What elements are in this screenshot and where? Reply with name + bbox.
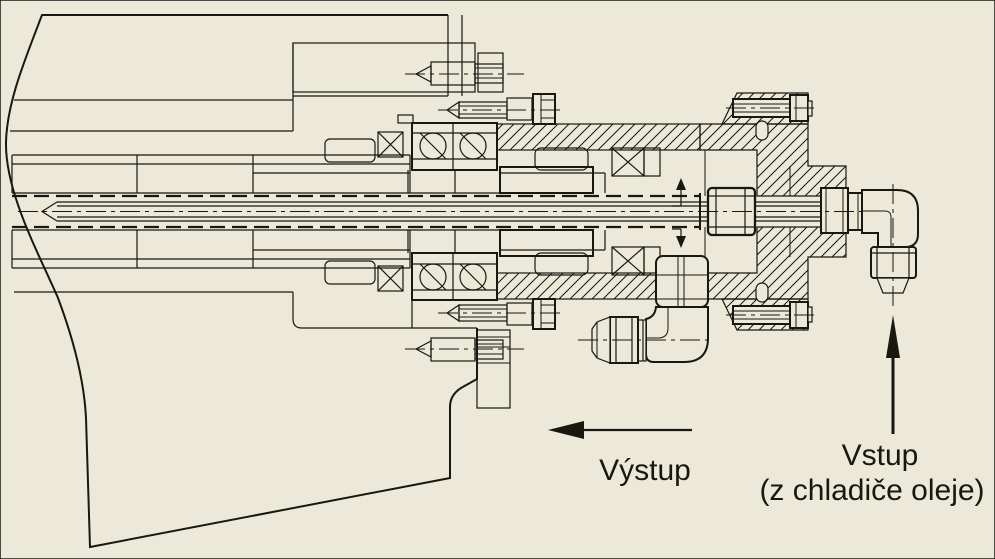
spindle-assembly-cross-section: Výstup Vstup (z chladiče oleje) <box>0 0 995 559</box>
dowel-pin-top <box>756 121 768 140</box>
inlet-label-line1: Vstup <box>842 439 919 472</box>
technical-drawing-canvas: Výstup Vstup (z chladiče oleje) <box>0 0 995 559</box>
outlet-label: Výstup <box>599 454 691 487</box>
dowel-pin-bottom <box>756 283 768 302</box>
cover-band-top <box>497 124 700 150</box>
inlet-label-line2: (z chladiče oleje) <box>759 474 984 507</box>
